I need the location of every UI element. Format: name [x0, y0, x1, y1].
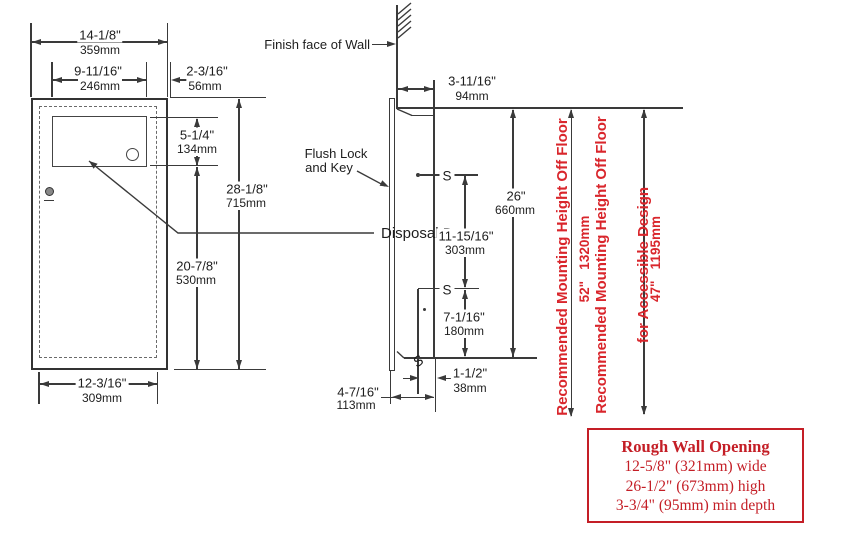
stud-marker-s1: S: [439, 169, 454, 184]
dim-bottom-depth-mm: 113mm: [334, 398, 377, 412]
flush-lock-label-line2: and Key: [296, 160, 362, 175]
dim-door-height-mm: 134mm: [175, 142, 219, 156]
dim-lower-stud-in: 7-1/16": [441, 310, 486, 325]
rough-wall-opening-height: 26-1/2" (673mm) high: [589, 477, 802, 497]
dim-depth-mm: 94mm: [453, 89, 490, 103]
dim-overall-height-mm: 715mm: [224, 196, 268, 210]
finish-face-of-wall-label: Finish face of Wall: [264, 37, 370, 52]
mounting-height-ada-label-line1: Recommended Mounting Height Off Floor: [595, 116, 609, 413]
dim-stud-spacing-mm: 303mm: [443, 243, 487, 257]
dim-door-width-mm: 246mm: [78, 79, 122, 93]
technical-drawing-canvas: 14-1/8" 359mm 9-11/16" 246mm 2-3/16" 56m…: [0, 0, 850, 533]
dim-opening-height-in: 26": [504, 189, 527, 204]
dim-depth-in: 3-11/16": [446, 74, 498, 89]
dim-opening-height-mm: 660mm: [493, 203, 537, 217]
dim-lower-height-mm: 530mm: [174, 273, 218, 287]
dim-door-width-in: 9-11/16": [72, 64, 124, 79]
dim-lower-stud-mm: 180mm: [442, 324, 486, 338]
dim-offset-in: 2-3/16": [184, 64, 229, 79]
dim-overall-height-in: 28-1/8": [224, 182, 269, 197]
stud-marker-s2: S: [439, 282, 454, 297]
dim-door-height-in: 5-1/4": [178, 128, 216, 143]
dim-bottom-inset-mm: 38mm: [451, 381, 488, 395]
dim-width-top-in: 14-1/8": [77, 28, 122, 43]
rough-wall-opening-title: Rough Wall Opening: [589, 437, 802, 457]
dim-width-top-mm: 359mm: [78, 43, 122, 57]
rough-wall-opening-box: Rough Wall Opening 12-5/8" (321mm) wide …: [587, 428, 804, 523]
dim-offset-mm: 56mm: [186, 79, 223, 93]
dim-bottom-inset-in: 1-1/2": [451, 366, 489, 381]
dim-stud-spacing-in: 11-15/16": [437, 229, 496, 244]
dim-width-bottom-in: 12-3/16": [76, 376, 129, 391]
rough-wall-opening-width: 12-5/8" (321mm) wide: [589, 457, 802, 477]
mounting-height-ada-value: 47" 1195mm: [649, 216, 663, 302]
flush-lock-label-line1: Flush Lock: [303, 146, 369, 161]
dim-lower-height-in: 20-7/8": [174, 259, 219, 274]
dim-width-bottom-mm: 309mm: [80, 391, 124, 405]
rough-wall-opening-depth: 3-3/4" (95mm) min depth: [589, 496, 802, 516]
